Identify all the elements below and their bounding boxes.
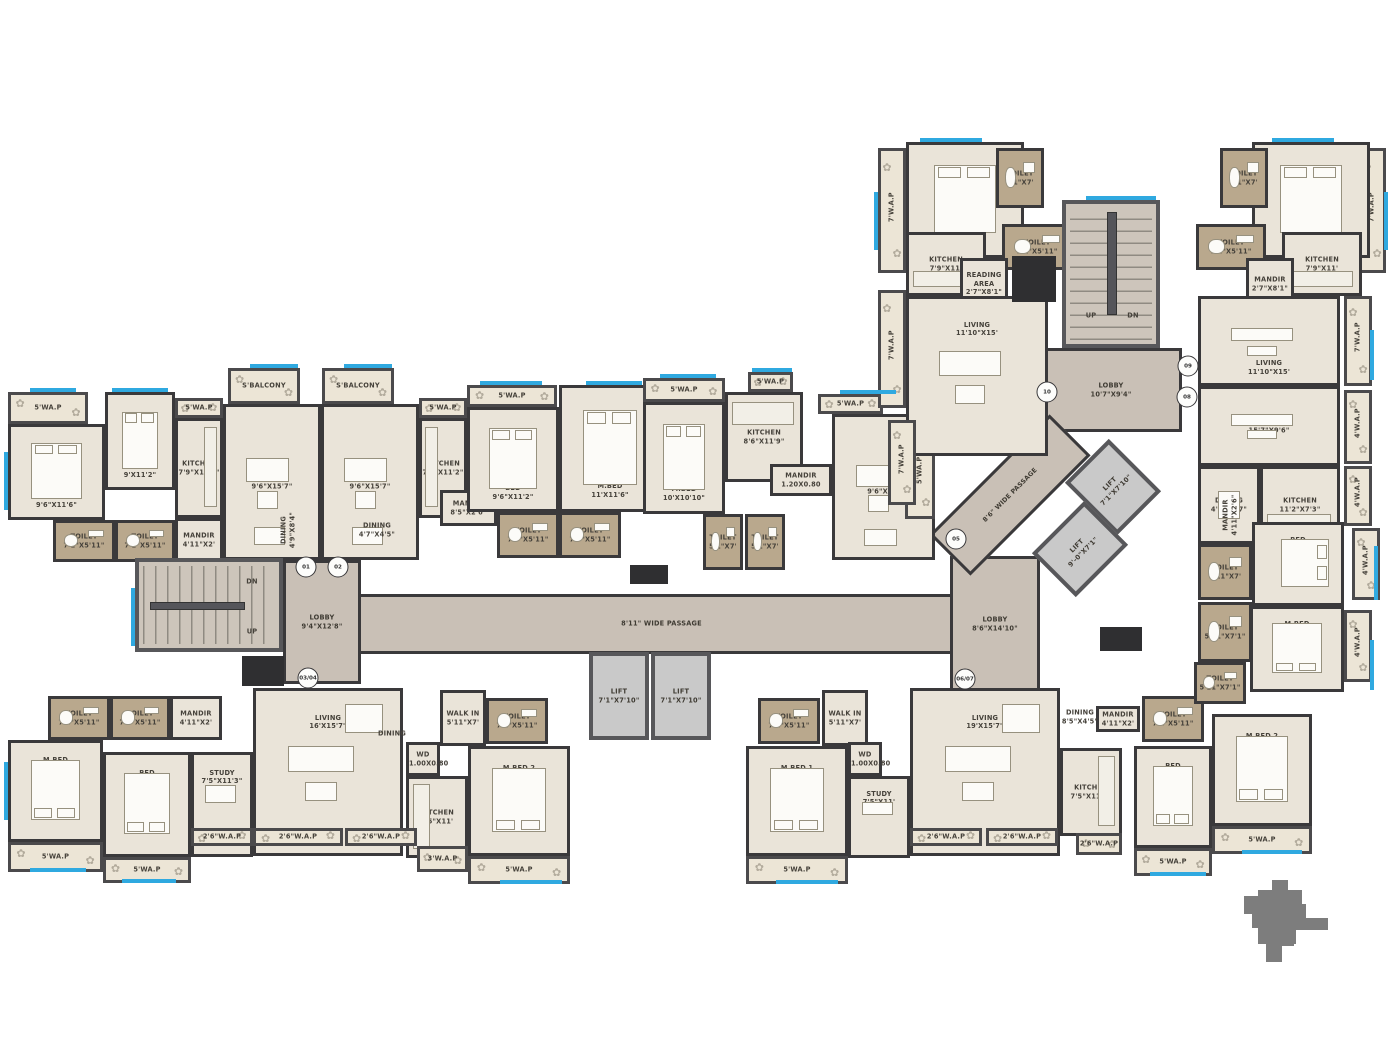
room-u01-bed: BED9'X11'2" bbox=[105, 392, 175, 490]
room-u0607-mbed2: M.BED 29'6"X11'6" bbox=[1212, 714, 1312, 826]
flower-icon: ✿ bbox=[1195, 858, 1204, 871]
room-u02-kitchen-planter: 5'WA.P✿✿ bbox=[419, 398, 467, 418]
flower-icon: ✿ bbox=[917, 832, 926, 845]
window-strip bbox=[1242, 850, 1302, 854]
room-u05-mandir: MANDIR1.20X0.80 bbox=[770, 464, 832, 496]
sofa-icon bbox=[344, 458, 386, 482]
flower-icon: ✿ bbox=[326, 829, 335, 842]
room-u0304-wap-1: 2'6"W.A.P✿✿ bbox=[191, 828, 253, 846]
pillow-icon bbox=[127, 822, 143, 832]
room-label: MANDIR4'11"X2' bbox=[173, 709, 219, 726]
room-u05-toilet-1: TOILET5'1"X7' bbox=[703, 514, 743, 570]
toilet-seat-icon bbox=[1203, 676, 1215, 690]
pillow-icon bbox=[496, 820, 515, 830]
room-label: WD1.00X0.80 bbox=[851, 750, 879, 767]
flower-icon: ✿ bbox=[882, 161, 891, 174]
flower-icon: ✿ bbox=[753, 376, 762, 389]
room-u01-kitchen-planter: 5'WA.P✿✿ bbox=[175, 398, 223, 418]
flower-icon: ✿ bbox=[1358, 363, 1367, 376]
room-u10-living: LIVING11'10"X15' bbox=[906, 296, 1048, 456]
pillow-icon bbox=[1299, 663, 1317, 671]
pillow-icon bbox=[125, 413, 138, 422]
stair-rail bbox=[1107, 212, 1117, 315]
unit-marker-02: 02 bbox=[328, 557, 349, 578]
room-u0304-wap-3: 2'6"W.A.P✿✿ bbox=[345, 828, 417, 846]
toilet-seat-icon bbox=[753, 532, 762, 551]
sink-icon bbox=[726, 527, 736, 537]
room-u01-living: LIVING9'6"X15'7" bbox=[223, 404, 321, 560]
pillow-icon bbox=[57, 808, 75, 818]
sink-icon bbox=[594, 523, 610, 531]
pillow-icon bbox=[34, 808, 52, 818]
window-strip bbox=[500, 880, 562, 884]
flower-icon: ✿ bbox=[1081, 837, 1090, 850]
stair-direction-label: DN bbox=[246, 578, 257, 587]
room-label: 7'W.A.P bbox=[898, 452, 907, 474]
desk-icon bbox=[205, 785, 236, 803]
room-label: 7'W.A.P bbox=[888, 338, 897, 360]
pillow-icon bbox=[35, 445, 53, 454]
room-label: KITCHEN11'2"X7'3" bbox=[1263, 496, 1337, 513]
room-u0304-toilet-2: TOILET7'1"X5'11" bbox=[110, 696, 170, 740]
toilet-seat-icon bbox=[711, 532, 720, 551]
room-u05-mbed-planter: 5'WA.P✿✿ bbox=[643, 378, 725, 402]
window-strip bbox=[840, 390, 896, 394]
room-label: LIFT7'1"X7'10" bbox=[593, 687, 645, 704]
flower-icon: ✿ bbox=[778, 375, 787, 388]
room-label: LIFT7'1"X7'10" bbox=[1088, 462, 1138, 512]
flower-icon: ✿ bbox=[401, 829, 410, 842]
flower-icon: ✿ bbox=[966, 829, 975, 842]
unit-marker-10: 10 bbox=[1037, 382, 1058, 403]
room-label: LOBBY10'7"X9'4" bbox=[1043, 381, 1179, 398]
flower-icon: ✿ bbox=[378, 386, 387, 399]
room-u0607-study: STUDY7'5"X11' bbox=[848, 776, 910, 858]
room-label: 4'W.A.P bbox=[1354, 485, 1363, 507]
window-strip bbox=[1370, 640, 1374, 690]
room-u0607-wd: WD1.00X0.80 bbox=[848, 742, 882, 776]
pillow-icon bbox=[1313, 167, 1335, 178]
room-u0304-mbed: M.BED9'6"X11'6" bbox=[8, 740, 103, 842]
room-label: LOBBY8'6"X14'10" bbox=[953, 615, 1037, 632]
duct-passage bbox=[630, 565, 668, 584]
window-strip bbox=[1384, 192, 1388, 250]
room-u01-toilet-1: TOILET7'1"X5'11" bbox=[53, 520, 115, 562]
toilet-seat-icon bbox=[126, 534, 140, 548]
stairs-west bbox=[135, 558, 283, 652]
sink-icon bbox=[793, 709, 809, 717]
window-strip bbox=[30, 868, 86, 872]
flower-icon: ✿ bbox=[71, 406, 80, 419]
dining-area-label: DINING 4'9"X8'4" bbox=[279, 512, 296, 548]
flower-icon: ✿ bbox=[284, 386, 293, 399]
floor-plan-canvas: 8'11" WIDE PASSAGELOBBY9'4"X12'8"LOBBY8'… bbox=[0, 0, 1389, 1042]
unit-marker-09: 09 bbox=[1178, 356, 1199, 377]
north-arrow-icon bbox=[1236, 876, 1336, 976]
room-u05-living-planter: 5'WA.P✿✿ bbox=[818, 394, 883, 414]
toilet-seat-icon bbox=[1229, 167, 1240, 188]
flower-icon: ✿ bbox=[111, 862, 120, 875]
flower-icon: ✿ bbox=[237, 829, 246, 842]
window-strip bbox=[30, 388, 76, 392]
room-label: MANDIR1.20X0.80 bbox=[773, 471, 829, 488]
window-strip bbox=[1374, 546, 1378, 600]
room-u10-toilet-1: TOILET5'1"X7' bbox=[996, 148, 1044, 208]
room-label: 8'11" WIDE PASSAGE bbox=[286, 620, 1037, 629]
flower-icon: ✿ bbox=[651, 382, 660, 395]
room-label: LIFT9'-0"X7'1" bbox=[1051, 520, 1110, 579]
lift-2: LIFT7'1"X7'10" bbox=[651, 652, 711, 740]
room-u0607-bed: BED9'X11'3" bbox=[1134, 746, 1212, 848]
room-u05-toilet-2: TOILET5'1"X7' bbox=[745, 514, 785, 570]
kitchen-counter-icon bbox=[425, 427, 438, 508]
room-label: LIVING11'10"X15' bbox=[1201, 359, 1337, 376]
toilet-seat-icon bbox=[1005, 167, 1016, 188]
sink-icon bbox=[521, 709, 537, 717]
toilet-seat-icon bbox=[59, 710, 74, 724]
room-label: LOBBY9'4"X12'8" bbox=[286, 613, 358, 630]
room-u05-mbed: M.BED10'X10'10" bbox=[643, 402, 725, 514]
window-strip bbox=[586, 381, 642, 385]
unit-marker-03-04: 03/04 bbox=[298, 668, 319, 689]
room-label: MANDIR4'11"X2' bbox=[178, 531, 220, 548]
dining-area-label: DINING bbox=[378, 730, 406, 739]
sofa-icon bbox=[246, 458, 288, 482]
flower-icon: ✿ bbox=[1348, 306, 1357, 319]
coffee-table-icon bbox=[1247, 430, 1277, 439]
window-strip bbox=[250, 364, 298, 368]
window-strip bbox=[776, 880, 838, 884]
flower-icon: ✿ bbox=[993, 832, 1002, 845]
coffee-table-icon bbox=[257, 491, 277, 509]
sink-icon bbox=[1023, 162, 1035, 173]
toilet-seat-icon bbox=[1014, 239, 1031, 254]
sink-icon bbox=[1229, 557, 1242, 567]
flower-icon: ✿ bbox=[1348, 398, 1357, 411]
stairs-northeast bbox=[1062, 200, 1160, 348]
pillow-icon bbox=[1156, 814, 1170, 824]
stair-rail bbox=[150, 602, 244, 611]
room-u01-balcony: S'BALCONY✿✿ bbox=[228, 368, 300, 404]
sofa-icon bbox=[1231, 414, 1294, 426]
room-u02-bed-planter: 5'WA.P✿✿ bbox=[467, 385, 557, 407]
room-u09-kitchen: KITCHEN7'9"X11' bbox=[1282, 232, 1362, 296]
room-u0304-wd: WD1.00X0.80 bbox=[406, 742, 440, 776]
sink-icon bbox=[1247, 162, 1259, 173]
pillow-icon bbox=[521, 820, 540, 830]
sofa-icon bbox=[945, 746, 1011, 772]
room-u10-planter-3: 7'W.A.P✿✿ bbox=[888, 420, 916, 505]
flower-icon: ✿ bbox=[1348, 473, 1357, 486]
room-label: READING AREA2'7"X8'1" bbox=[963, 271, 1005, 297]
toilet-seat-icon bbox=[121, 710, 135, 724]
pillow-icon bbox=[938, 167, 960, 178]
kitchen-counter-icon bbox=[1098, 756, 1115, 827]
flower-icon: ✿ bbox=[1358, 506, 1367, 519]
coffee-table-icon bbox=[868, 495, 889, 512]
flower-icon: ✿ bbox=[825, 398, 834, 411]
flower-icon: ✿ bbox=[1356, 536, 1365, 549]
kitchen-counter-icon bbox=[1289, 271, 1353, 287]
unit-marker-05: 05 bbox=[946, 529, 967, 550]
pillow-icon bbox=[587, 412, 606, 424]
room-u09-planter-2: 7'W.A.P✿✿ bbox=[1344, 296, 1372, 386]
sink-icon bbox=[88, 530, 104, 537]
toilet-seat-icon bbox=[1208, 239, 1225, 254]
toilet-seat-icon bbox=[570, 527, 585, 542]
pillow-icon bbox=[58, 445, 76, 454]
sink-icon bbox=[1042, 235, 1060, 243]
flower-icon: ✿ bbox=[197, 832, 206, 845]
coffee-table-icon bbox=[962, 782, 994, 801]
room-u02-toilet-1: TOILET7'5"X5'11" bbox=[497, 512, 559, 558]
room-u0304-wap-2: 2'6"W.A.P✿✿ bbox=[253, 828, 343, 846]
stair-direction-label: UP bbox=[247, 628, 258, 637]
stair-direction-label: DN bbox=[1127, 312, 1138, 321]
room-u0607-mandir: MANDIR4'11"X2' bbox=[1096, 706, 1140, 732]
toilet-seat-icon bbox=[1153, 711, 1168, 726]
flower-icon: ✿ bbox=[452, 401, 461, 414]
pillow-icon bbox=[799, 820, 818, 830]
flower-icon: ✿ bbox=[1141, 853, 1150, 866]
pillow-icon bbox=[686, 426, 701, 437]
room-label: MANDIR4'11"X2' bbox=[1099, 710, 1137, 727]
flower-icon: ✿ bbox=[423, 851, 432, 864]
sofa-icon bbox=[1231, 328, 1294, 341]
flower-icon: ✿ bbox=[16, 847, 25, 860]
window-strip bbox=[131, 588, 135, 646]
window-strip bbox=[4, 452, 8, 510]
flower-icon: ✿ bbox=[902, 483, 911, 496]
flower-icon: ✿ bbox=[85, 854, 94, 867]
duct-lobby-right bbox=[1100, 627, 1142, 651]
sofa-icon bbox=[288, 746, 354, 772]
flower-icon: ✿ bbox=[540, 390, 549, 403]
room-u08-planter-4: 4'W.A.P✿✿ bbox=[1344, 610, 1372, 682]
flower-icon: ✿ bbox=[329, 373, 338, 386]
window-strip bbox=[4, 762, 8, 820]
dining-area-label: MANDIR 4'11"X2'6" bbox=[1221, 495, 1238, 536]
pillow-icon bbox=[515, 430, 532, 440]
flower-icon: ✿ bbox=[425, 402, 434, 415]
flower-icon: ✿ bbox=[235, 373, 244, 386]
window-strip bbox=[660, 374, 716, 378]
lobby-top-right: LOBBY10'7"X9'4" bbox=[1040, 348, 1182, 432]
passage-main: 8'11" WIDE PASSAGE bbox=[283, 594, 1040, 654]
room-u08-toilet-3: TOILET5'11"X7'1" bbox=[1194, 662, 1246, 704]
flower-icon: ✿ bbox=[1042, 829, 1051, 842]
sink-icon bbox=[1177, 707, 1193, 715]
room-u01-mandir: MANDIR4'11"X2' bbox=[175, 518, 223, 562]
room-u09-toilet-1: TOILET5'1"X7' bbox=[1220, 148, 1268, 208]
flower-icon: ✿ bbox=[755, 861, 764, 874]
room-label: WALK IN5'11"X7' bbox=[825, 709, 865, 726]
sink-icon bbox=[1229, 616, 1242, 627]
coffee-table-icon bbox=[1247, 346, 1277, 356]
flower-icon: ✿ bbox=[174, 865, 183, 878]
window-strip bbox=[1150, 872, 1206, 876]
room-u0607-walkin: WALK IN5'11"X7' bbox=[822, 690, 868, 746]
room-label: 7'W.A.P bbox=[1354, 330, 1363, 352]
flower-icon: ✿ bbox=[1358, 661, 1367, 674]
pillow-icon bbox=[1264, 789, 1283, 800]
pillow-icon bbox=[612, 412, 631, 424]
room-u0304-toilet-3: TOILET7'1"X5'11" bbox=[486, 698, 548, 744]
room-u0607-wap-2: 2'6"W.A.P✿✿ bbox=[986, 828, 1058, 846]
flower-icon: ✿ bbox=[261, 832, 270, 845]
toilet-seat-icon bbox=[508, 527, 523, 542]
pillow-icon bbox=[1317, 545, 1327, 559]
room-u08-mbed: M.BED11'6"X9'6" bbox=[1250, 606, 1344, 692]
room-label: LIVING11'10"X15' bbox=[909, 321, 1045, 338]
flower-icon: ✿ bbox=[892, 247, 901, 260]
pillow-icon bbox=[1174, 814, 1188, 824]
sink-icon bbox=[1224, 672, 1237, 679]
sink-icon bbox=[1236, 235, 1254, 243]
room-label: KITCHEN8'6"X11'9" bbox=[728, 428, 800, 445]
flower-icon: ✿ bbox=[1107, 838, 1116, 851]
pillow-icon bbox=[1317, 566, 1327, 580]
window-strip bbox=[112, 388, 168, 392]
unit-marker-01: 01 bbox=[296, 557, 317, 578]
sink-icon bbox=[149, 530, 164, 537]
pillow-icon bbox=[967, 167, 989, 178]
pillow-icon bbox=[1276, 663, 1294, 671]
room-label: WALK IN5'11"X7' bbox=[443, 709, 483, 726]
room-u09-living: LIVING11'10"X15' bbox=[1198, 296, 1340, 386]
window-strip bbox=[920, 138, 982, 142]
dining-table-icon bbox=[1002, 704, 1039, 733]
room-label: 7'W.A.P bbox=[888, 200, 897, 222]
room-u08-planter-1: 4'W.A.P✿✿ bbox=[1344, 390, 1372, 464]
sink-icon bbox=[144, 707, 159, 715]
room-u01-toilet-2: TOILET7'1"X5'11" bbox=[115, 520, 175, 562]
unit-marker-08: 08 bbox=[1177, 387, 1198, 408]
window-strip bbox=[480, 381, 542, 385]
room-u10-planter-1: 7'W.A.P✿✿ bbox=[878, 148, 906, 273]
pillow-icon bbox=[774, 820, 793, 830]
flower-icon: ✿ bbox=[882, 302, 891, 315]
window-strip bbox=[1370, 330, 1374, 380]
room-u0304-planter-3: 3'W.A.P✿✿ bbox=[417, 846, 468, 872]
flower-icon: ✿ bbox=[1348, 618, 1357, 631]
lift-1: LIFT7'1"X7'10" bbox=[589, 652, 649, 740]
sink-icon bbox=[532, 523, 548, 531]
flower-icon: ✿ bbox=[1294, 836, 1303, 849]
room-label: MANDIR2'7"X8'1" bbox=[1249, 275, 1291, 292]
flower-icon: ✿ bbox=[1221, 831, 1230, 844]
room-u0607-wap-3: 2'6"W.A.P✿✿ bbox=[1076, 833, 1122, 855]
flower-icon: ✿ bbox=[1372, 247, 1381, 260]
toilet-seat-icon bbox=[64, 534, 79, 548]
room-u01-planter-top: 5'WA.P✿✿ bbox=[8, 392, 88, 424]
pillow-icon bbox=[1284, 167, 1306, 178]
room-u0304-mbed2: M.BED 210'X11' bbox=[468, 746, 570, 856]
dining-area-label: DINING 4'7"X4'5" bbox=[359, 521, 395, 538]
pillow-icon bbox=[666, 426, 681, 437]
dining-area-label: DINING 8'5"X4'5" bbox=[1062, 708, 1098, 725]
coffee-table-icon bbox=[355, 491, 375, 509]
flower-icon: ✿ bbox=[181, 402, 190, 415]
room-u02-balcony: S'BALCONY✿✿ bbox=[322, 368, 394, 404]
room-label: 4'W.A.P bbox=[1354, 635, 1363, 657]
desk-icon bbox=[862, 802, 893, 816]
room-u0304-walkin: WALK IN5'11"X7' bbox=[440, 690, 486, 746]
pillow-icon bbox=[492, 430, 509, 440]
flower-icon: ✿ bbox=[475, 389, 484, 402]
room-u0304-mandir: MANDIR4'11"X2' bbox=[170, 696, 222, 740]
pillow-icon bbox=[141, 413, 154, 422]
sink-icon bbox=[83, 707, 99, 715]
room-u02-bed: BED9'6"X11'2" bbox=[467, 407, 559, 512]
toilet-seat-icon bbox=[769, 713, 784, 728]
room-u08-toilet-2: TOILET5'11"X7'1" bbox=[1198, 602, 1252, 662]
window-strip bbox=[122, 879, 176, 883]
flower-icon: ✿ bbox=[453, 854, 462, 867]
toilet-seat-icon bbox=[1208, 621, 1220, 642]
kitchen-counter-icon bbox=[204, 427, 217, 508]
room-u08-toilet-1: TOILET5'11"X7' bbox=[1198, 544, 1252, 600]
window-strip bbox=[344, 364, 392, 368]
flower-icon: ✿ bbox=[552, 866, 561, 879]
room-u08-planter-2: 4'W.A.P✿✿ bbox=[1344, 466, 1372, 526]
room-u0607-toilet-1: TOILET7'1"X5'11" bbox=[758, 698, 820, 744]
window-strip bbox=[874, 192, 878, 250]
unit-marker-06-07: 06/07 bbox=[955, 669, 976, 690]
flower-icon: ✿ bbox=[892, 429, 901, 442]
flower-icon: ✿ bbox=[477, 861, 486, 874]
duct-northeast bbox=[1012, 256, 1056, 302]
duct-stair-west bbox=[242, 656, 284, 686]
room-u02-toilet-2: TOILET7'5"X5'11" bbox=[559, 512, 621, 558]
room-u01-mbed: M.BED9'6"X11'6" bbox=[8, 424, 105, 520]
toilet-seat-icon bbox=[1208, 562, 1220, 581]
kitchen-counter-icon bbox=[732, 402, 794, 426]
room-u08-living: LIVING15'7"X9'6" bbox=[1198, 386, 1340, 466]
flower-icon: ✿ bbox=[352, 832, 361, 845]
room-u08-bed: BED11'X9'9" bbox=[1252, 522, 1344, 606]
flower-icon: ✿ bbox=[867, 397, 876, 410]
room-u0304-bed: BED9'X11'3" bbox=[103, 752, 191, 857]
room-label: STUDY7'5"X11'3" bbox=[194, 769, 250, 786]
dining-table-icon bbox=[864, 529, 897, 546]
room-u0304-toilet-1: TOILET7'1"X5'11" bbox=[48, 696, 110, 740]
window-strip bbox=[752, 368, 792, 372]
room-label: WD1.00X0.80 bbox=[409, 750, 437, 767]
toilet-seat-icon bbox=[497, 713, 512, 728]
window-strip bbox=[1086, 196, 1156, 200]
flower-icon: ✿ bbox=[830, 866, 839, 879]
room-u0607-wap-1: 2'6"W.A.P✿✿ bbox=[910, 828, 982, 846]
flower-icon: ✿ bbox=[921, 496, 930, 509]
stair-direction-label: UP bbox=[1086, 312, 1097, 321]
coffee-table-icon bbox=[955, 385, 985, 403]
room-label: 4'W.A.P bbox=[1354, 416, 1363, 438]
flower-icon: ✿ bbox=[1358, 443, 1367, 456]
room-u0607-kitchen: KITCHEN7'5"X11'2" bbox=[1060, 748, 1122, 836]
room-u05-kitchen-planter: 5'WA.P✿✿ bbox=[748, 372, 793, 392]
room-label: 5'WA.P bbox=[916, 460, 925, 484]
room-u0607-mbed1: M.BED 110'X11' bbox=[746, 746, 848, 856]
room-u01-kitchen: KITCHEN7'9"X11'2" bbox=[175, 418, 223, 518]
room-label: 4'W.A.P bbox=[1362, 553, 1371, 575]
pillow-icon bbox=[1239, 789, 1258, 800]
sofa-icon bbox=[939, 351, 1002, 376]
flower-icon: ✿ bbox=[15, 397, 24, 410]
pillow-icon bbox=[149, 822, 165, 832]
coffee-table-icon bbox=[305, 782, 337, 801]
sink-icon bbox=[768, 527, 778, 537]
